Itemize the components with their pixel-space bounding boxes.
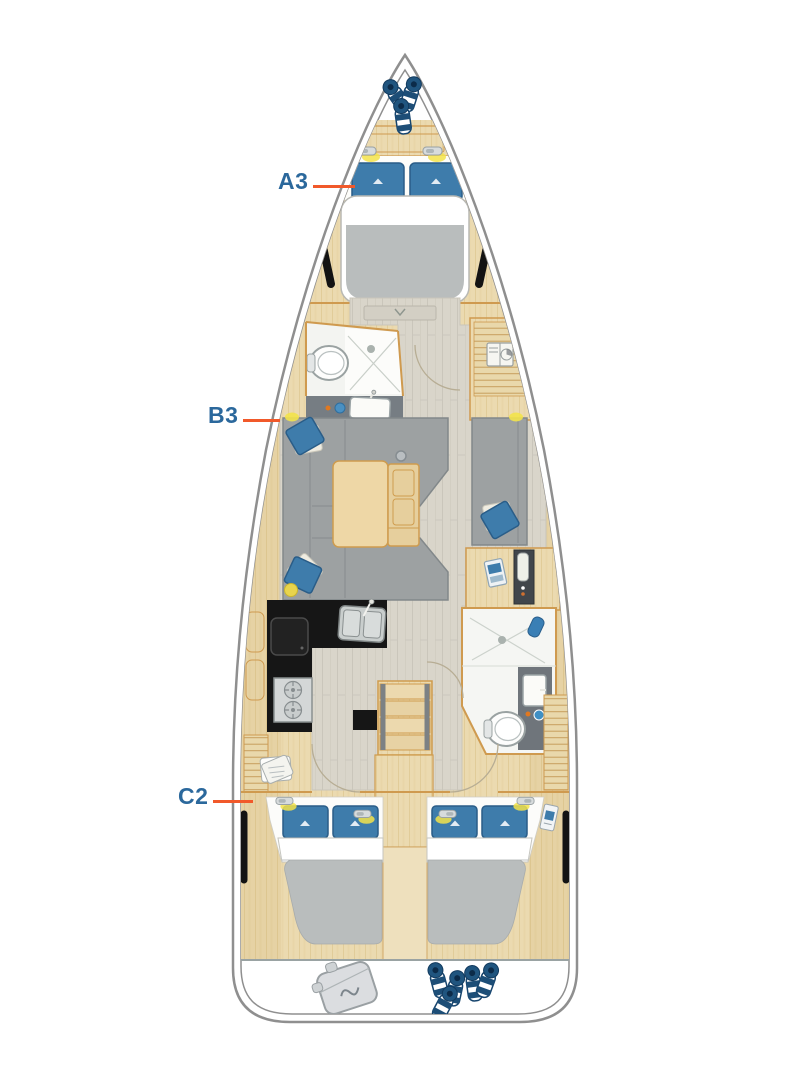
shower-head-icon <box>367 345 375 353</box>
berth-mattress <box>278 838 383 862</box>
washing-machine-icon <box>487 343 513 366</box>
burner-icon <box>285 702 302 719</box>
fridge-icon <box>271 618 308 655</box>
burner-icon <box>285 682 302 699</box>
interior <box>233 120 577 1022</box>
nav-cabinet <box>466 548 560 610</box>
fridge-handle <box>301 647 304 650</box>
companionway-stairs-icon <box>375 681 433 960</box>
mast-post-icon <box>396 451 406 461</box>
locker-door <box>518 553 529 581</box>
light-glow <box>285 413 299 422</box>
companionway-step <box>364 306 436 320</box>
forward-head <box>306 322 403 421</box>
plan-canvas <box>0 0 810 1080</box>
yacht-layout-plan: A3 B3 C2 <box>0 0 810 1080</box>
stair-landing <box>375 755 433 847</box>
drain-dot <box>335 403 345 413</box>
locker-dot <box>521 586 525 590</box>
locker-dot <box>521 592 525 596</box>
galley-island <box>353 710 377 730</box>
stbd-slat-locker <box>544 695 568 790</box>
yellow-ball <box>285 584 298 597</box>
drain-dot <box>534 710 544 720</box>
forward-cabin <box>268 126 542 303</box>
faucet-dot <box>526 712 531 717</box>
berth-foot-gray <box>346 225 464 299</box>
shower-head-icon <box>498 636 506 644</box>
light-glow <box>509 413 523 422</box>
aft-head <box>462 608 556 754</box>
salon-table-icon <box>333 461 419 547</box>
center-divider <box>383 847 427 960</box>
faucet-dot <box>326 406 331 411</box>
